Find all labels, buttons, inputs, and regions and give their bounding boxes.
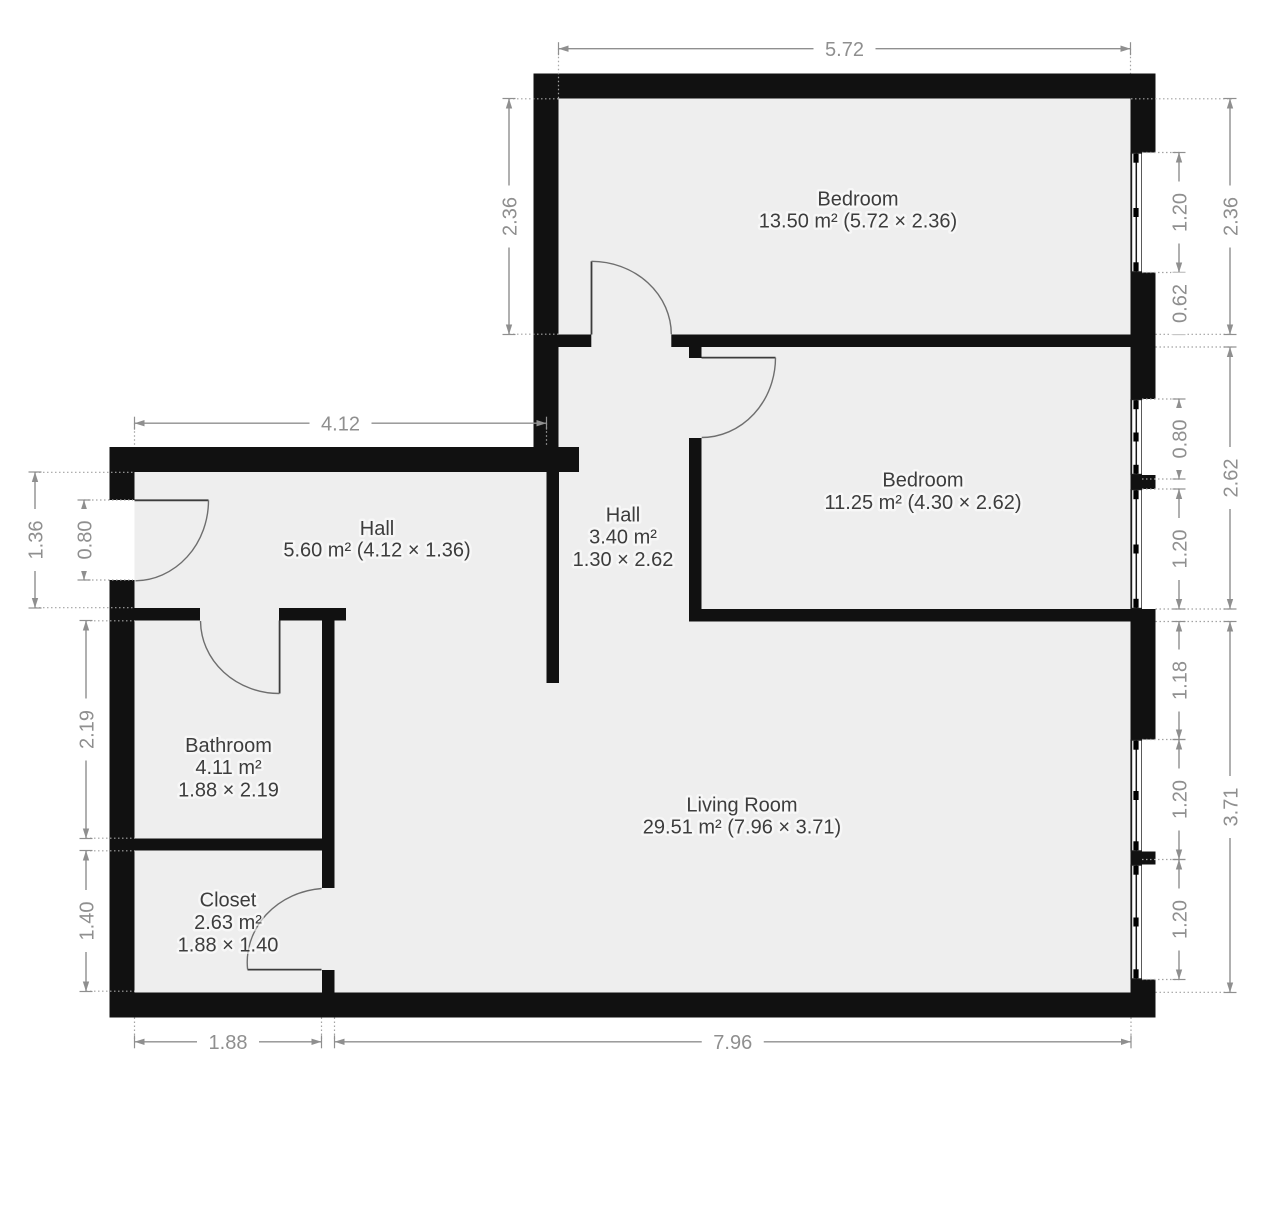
svg-text:2.63 m²: 2.63 m² [194,912,262,934]
svg-text:Bedroom: Bedroom [882,470,963,492]
svg-text:1.30 × 2.62: 1.30 × 2.62 [573,549,674,571]
svg-text:1.88 × 2.19: 1.88 × 2.19 [178,780,279,802]
svg-text:29.51 m² (7.96 × 3.71): 29.51 m² (7.96 × 3.71) [643,817,841,839]
svg-text:0.80: 0.80 [1169,420,1191,459]
svg-text:Closet: Closet [200,890,257,912]
svg-text:0.80: 0.80 [74,521,96,560]
svg-text:2.36: 2.36 [1220,197,1242,236]
svg-text:1.88: 1.88 [209,1032,248,1054]
svg-text:3.40 m²: 3.40 m² [589,527,657,549]
svg-text:2.36: 2.36 [499,197,521,236]
svg-text:3.71: 3.71 [1220,788,1242,827]
svg-text:5.72: 5.72 [825,39,864,61]
svg-text:Hall: Hall [606,505,640,527]
svg-text:1.36: 1.36 [25,521,47,560]
svg-text:1.20: 1.20 [1169,530,1191,569]
svg-text:Bedroom: Bedroom [817,189,898,211]
svg-text:7.96: 7.96 [713,1032,752,1054]
svg-text:2.62: 2.62 [1220,459,1242,498]
svg-text:Living Room: Living Room [686,795,797,817]
svg-text:11.25 m² (4.30 × 2.62): 11.25 m² (4.30 × 2.62) [825,492,1022,514]
svg-text:13.50 m² (5.72 × 2.36): 13.50 m² (5.72 × 2.36) [759,211,957,233]
svg-text:5.60 m² (4.12 × 1.36): 5.60 m² (4.12 × 1.36) [283,540,470,562]
svg-text:Hall: Hall [360,518,394,540]
svg-text:1.20: 1.20 [1169,900,1191,939]
svg-text:Bathroom: Bathroom [185,735,272,757]
svg-text:1.20: 1.20 [1169,193,1191,232]
svg-text:1.40: 1.40 [76,902,98,941]
svg-text:1.20: 1.20 [1169,780,1191,819]
svg-text:4.11 m²: 4.11 m² [195,757,262,779]
svg-text:1.18: 1.18 [1169,661,1191,700]
svg-text:4.12: 4.12 [321,414,360,436]
svg-text:1.88 × 1.40: 1.88 × 1.40 [178,935,279,957]
svg-text:2.19: 2.19 [76,710,98,749]
svg-text:0.62: 0.62 [1169,284,1191,323]
